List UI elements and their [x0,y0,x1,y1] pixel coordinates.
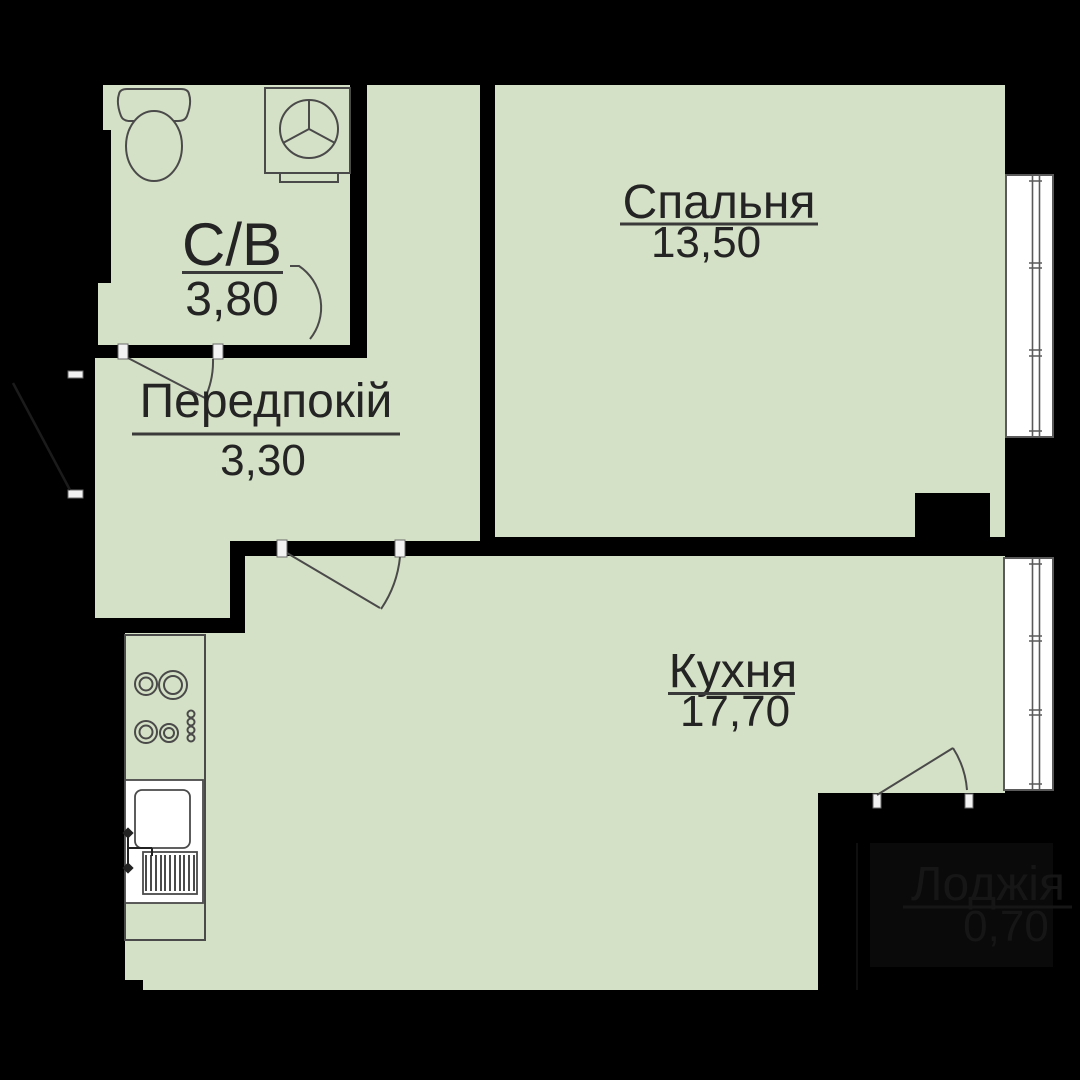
room-area: 13,50 [651,218,761,267]
washing-machine-icon [265,88,350,182]
bathroom-label: С/В 3,80 [182,211,283,326]
door-jamb [873,794,881,808]
door-jamb [277,540,287,557]
door-jamb [965,794,973,808]
window-icon [1006,175,1053,437]
bedroom-window [1006,175,1053,437]
floor-plan-svg: С/В 3,80 Спальня 13,50 Передпокій 3,30 К… [0,0,1080,1080]
kitchen-window [1004,558,1053,790]
room-area: 3,30 [220,436,306,485]
washer-tab [280,173,338,182]
door-jamb [395,540,405,557]
room-area: 0,70 [963,902,1049,951]
window-icon [1004,558,1053,790]
door-jamb [118,344,128,359]
kitchen-sink-icon [122,780,203,903]
room-name: С/В [182,211,282,278]
sink-basin [135,790,190,848]
door-jamb [68,371,83,378]
toilet-bowl [126,111,182,181]
room-name: Передпокій [140,375,393,428]
door-jamb [68,490,83,498]
room-area: 3,80 [185,273,278,326]
bedroom-floor [495,85,1005,537]
door-jamb [213,344,223,359]
kitchen-label: Кухня 17,70 [668,645,797,736]
room-area: 17,70 [680,687,790,736]
